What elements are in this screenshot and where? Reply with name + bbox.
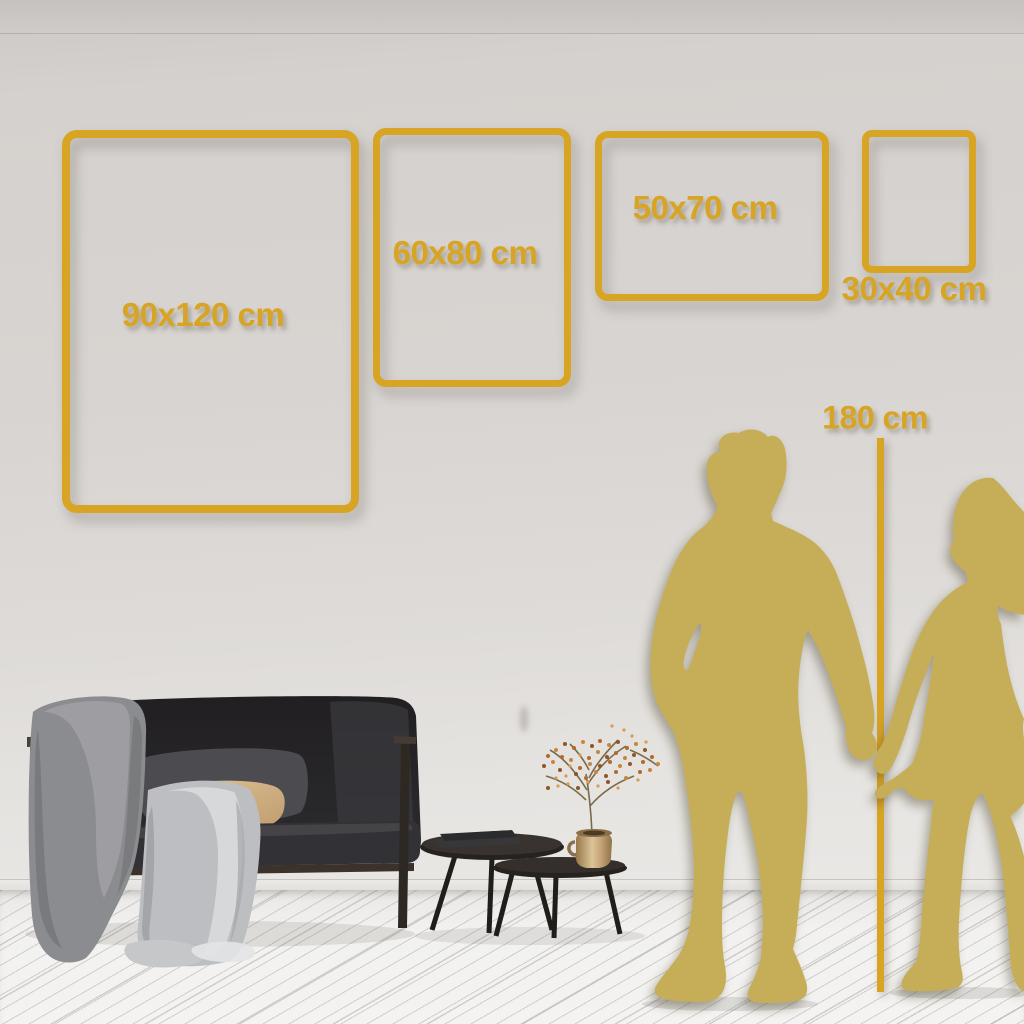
silhouettes-layer <box>0 0 1024 1024</box>
man-silhouette <box>650 430 877 1004</box>
poster-size-guide-scene: 90x120 cm 60x80 cm 50x70 cm 30x40 cm 180… <box>0 0 1024 1024</box>
woman-silhouette <box>874 478 1024 994</box>
